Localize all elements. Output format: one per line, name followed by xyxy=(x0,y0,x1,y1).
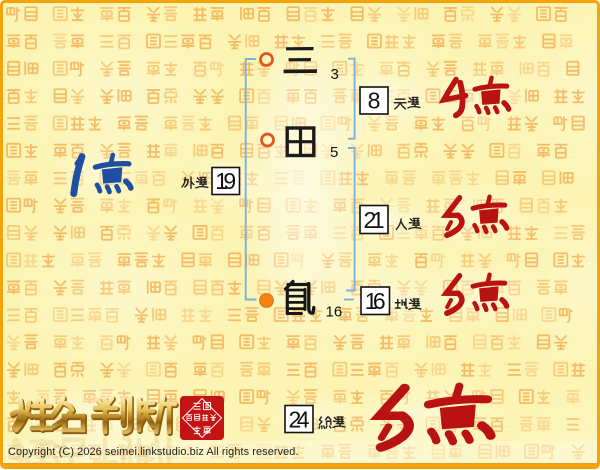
svg-text:21: 21 xyxy=(364,207,385,233)
svg-text:16: 16 xyxy=(365,288,386,314)
svg-text:5: 5 xyxy=(330,144,338,161)
svg-text:8: 8 xyxy=(368,88,381,114)
svg-text:3: 3 xyxy=(331,66,339,83)
svg-text:16: 16 xyxy=(326,304,343,321)
svg-text:24: 24 xyxy=(289,407,310,433)
svg-text:19: 19 xyxy=(215,168,236,194)
